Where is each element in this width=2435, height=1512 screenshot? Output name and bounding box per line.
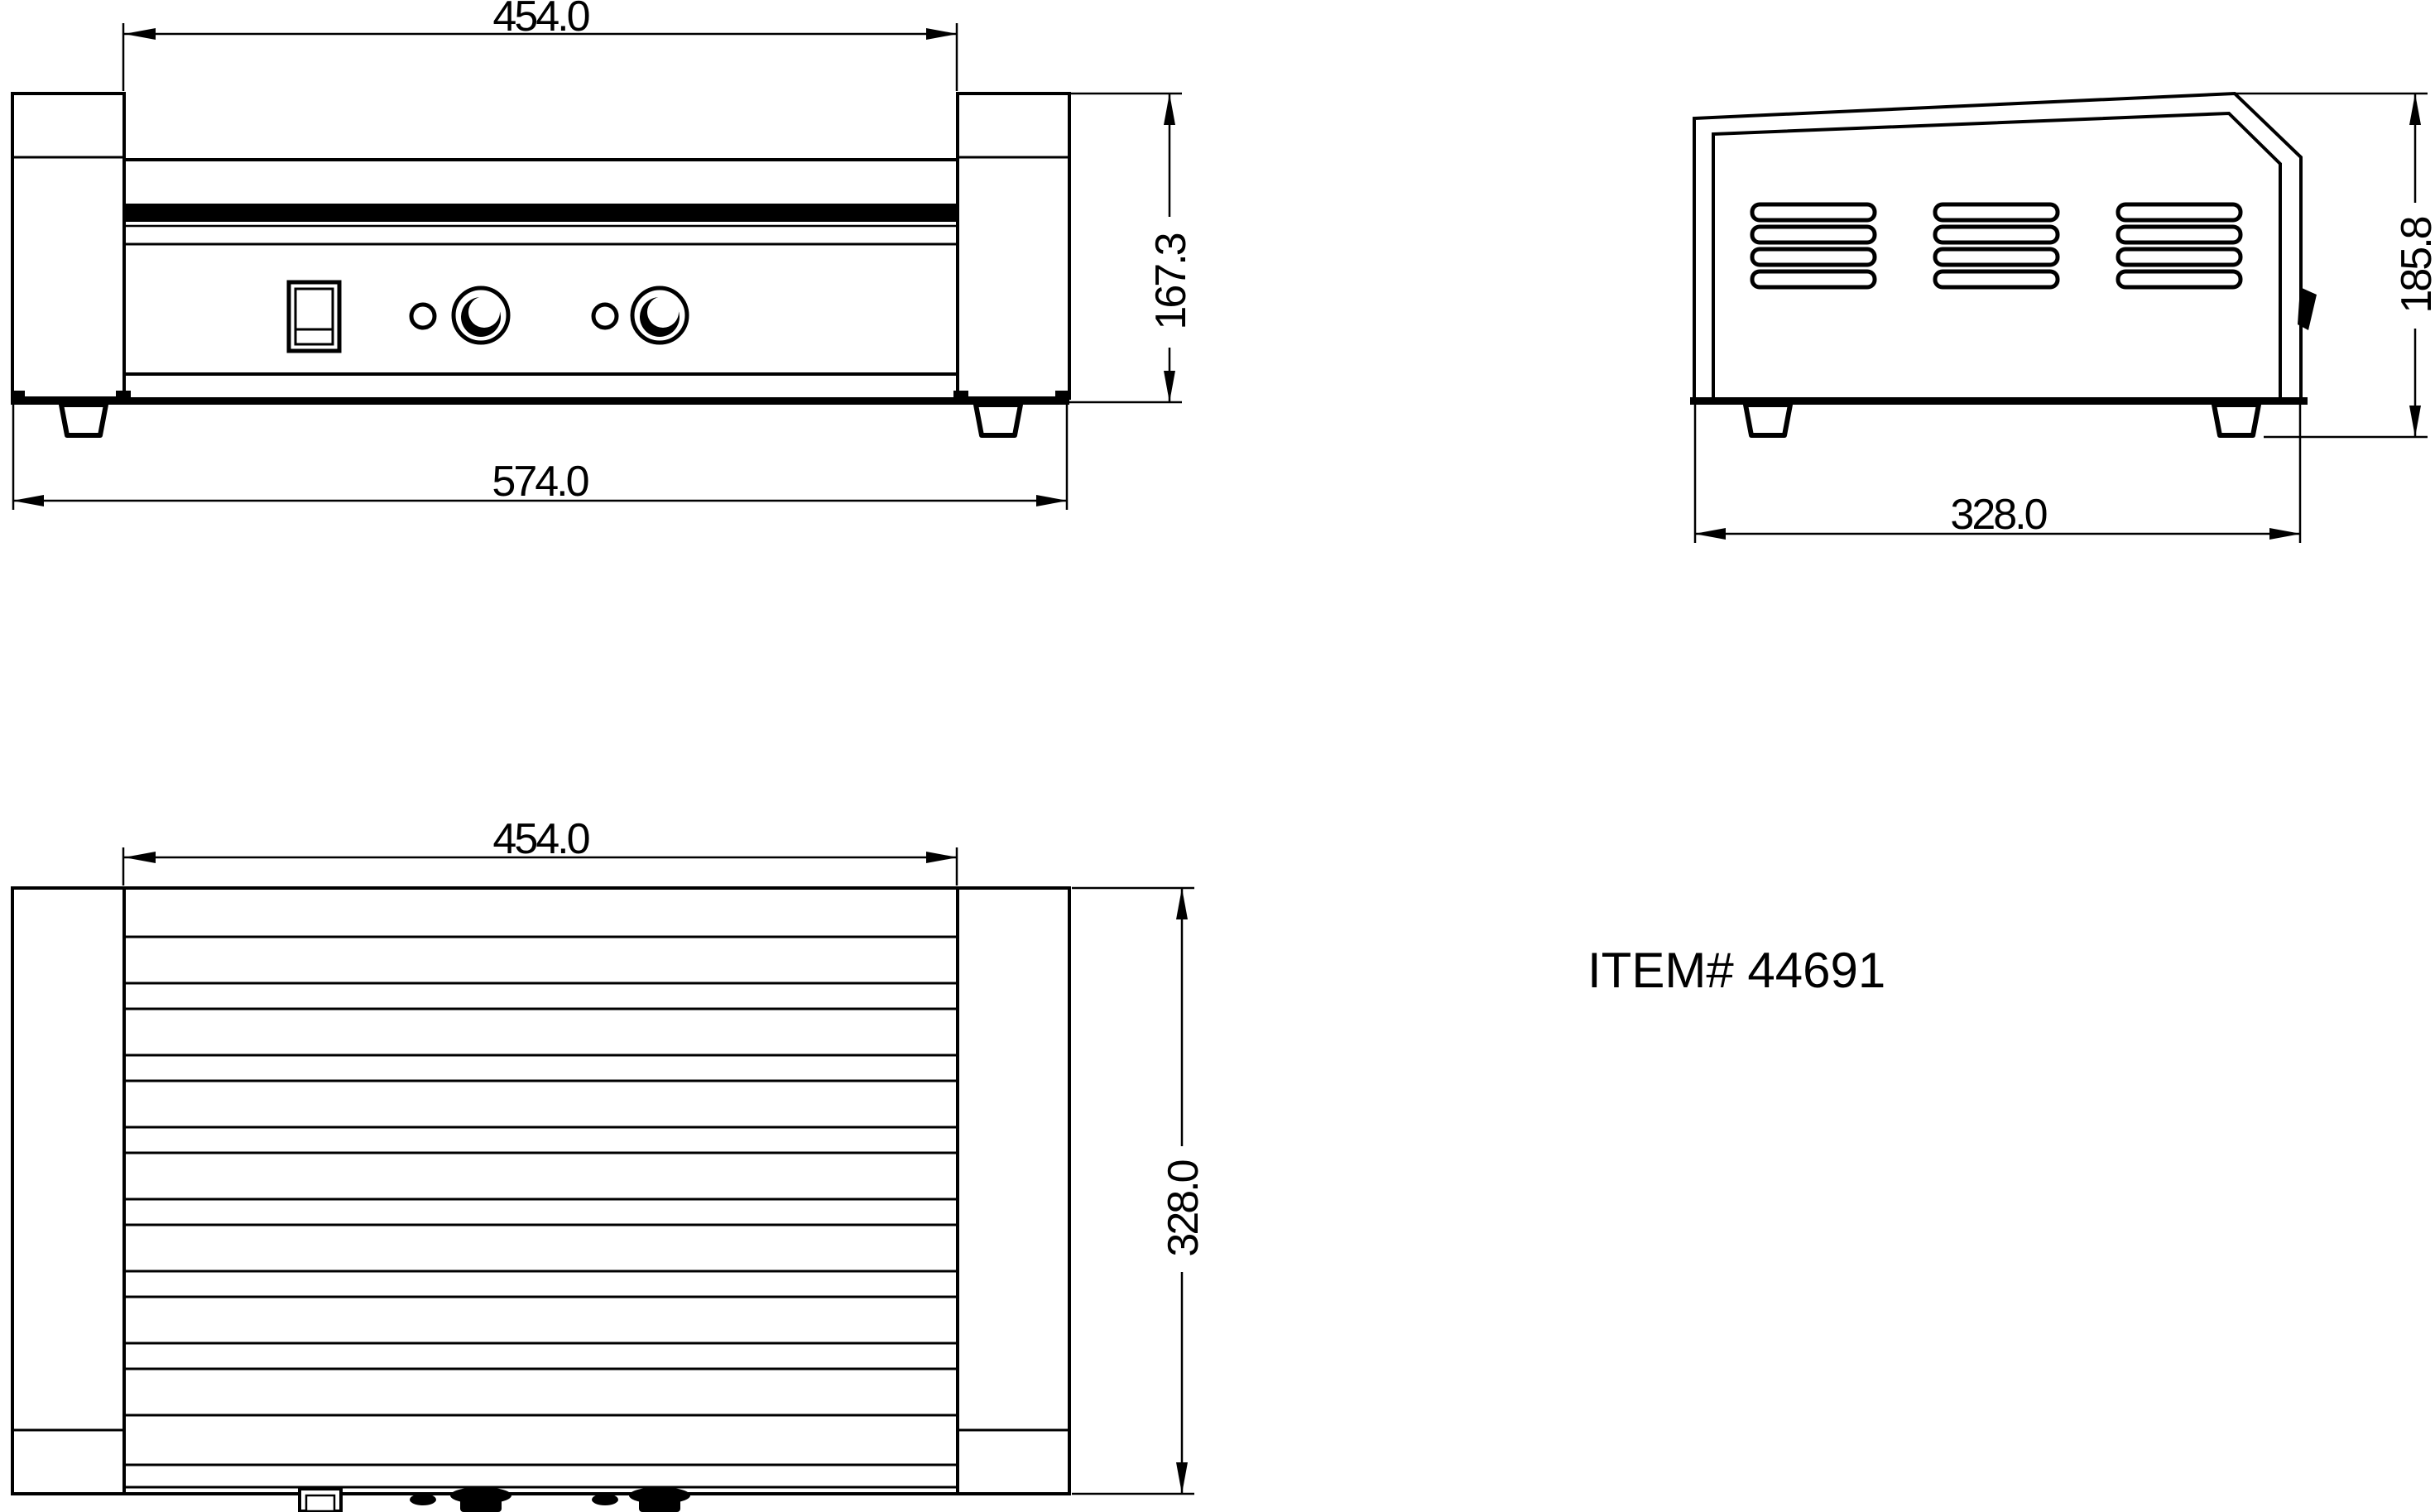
vent-slat [1935, 271, 2058, 287]
side-vent-group-2 [1935, 204, 2058, 287]
vent-slat [1935, 227, 2058, 242]
dim-front-overall-width-value: 574.0 [492, 458, 588, 506]
dim-front-roller-width-value: 454.0 [492, 0, 588, 41]
control-knob-1 [454, 288, 508, 343]
front-foot-right [976, 405, 1021, 435]
front-base-nub-2 [116, 391, 131, 398]
front-view: 454.0 574.0 167.3 [11, 0, 1195, 510]
front-foot-left [61, 405, 106, 435]
vent-slat [2118, 204, 2240, 220]
front-base-plate [11, 397, 1069, 405]
dim-front-height-value: 167.3 [1147, 233, 1195, 329]
front-control-panel [289, 282, 687, 351]
top-outline [12, 888, 1069, 1494]
vent-slat [1752, 249, 1875, 265]
dim-top-roller-width: 454.0 [123, 815, 958, 886]
front-base-nub-1 [13, 391, 25, 398]
top-rollers [124, 937, 958, 1487]
top-controls [300, 1487, 690, 1512]
front-right-panel [958, 94, 1069, 398]
side-outline-outer [1694, 94, 2301, 398]
top-indicator-1 [410, 1494, 436, 1505]
dim-side-height-value: 185.8 [2393, 217, 2435, 313]
dim-top-depth-value: 328.0 [1160, 1160, 1208, 1256]
vent-slat [1935, 249, 2058, 265]
dim-front-overall-width: 574.0 [12, 403, 1068, 510]
vent-slat [1935, 204, 2058, 220]
top-power-switch-rocker [306, 1495, 334, 1511]
dim-top-roller-width-value: 454.0 [492, 815, 588, 863]
control-knob-2 [632, 288, 687, 343]
top-indicator-2 [592, 1494, 618, 1505]
vent-slat [1752, 227, 1875, 242]
indicator-light-2 [593, 305, 617, 328]
dim-side-height: 185.8 [2235, 94, 2435, 437]
dim-side-depth-value: 328.0 [1950, 491, 2046, 539]
side-vent-group-1 [1752, 204, 1875, 287]
top-knob-2 [629, 1487, 690, 1512]
side-switch-lever [2298, 287, 2317, 330]
vent-slat [2118, 249, 2240, 265]
dim-front-height: 167.3 [1069, 94, 1195, 402]
indicator-light-1 [411, 305, 435, 328]
side-view: 328.0 185.8 [1690, 94, 2435, 543]
item-number: ITEM# 44691 [1587, 943, 1885, 998]
side-vent-group-3 [2118, 204, 2240, 287]
dim-top-depth: 328.0 [1072, 888, 1208, 1494]
front-base-nub-3 [953, 391, 968, 398]
drawing-sheet: 454.0 574.0 167.3 [0, 0, 2435, 1512]
top-view: 454.0 328.0 [12, 815, 1208, 1512]
front-base-nub-4 [1055, 391, 1068, 398]
vent-slat [1752, 204, 1875, 220]
vent-slat [1752, 271, 1875, 287]
side-foot-left [1746, 405, 1790, 435]
side-foot-right [2214, 405, 2259, 435]
vent-slat [2118, 227, 2240, 242]
top-knob-1 [450, 1487, 511, 1512]
front-left-panel [12, 94, 124, 398]
power-switch-rocker [295, 289, 333, 344]
vent-slat [2118, 271, 2240, 287]
dim-front-roller-width: 454.0 [123, 0, 958, 91]
technical-drawing: 454.0 574.0 167.3 [0, 0, 2435, 1512]
front-roller-bar [124, 204, 958, 222]
